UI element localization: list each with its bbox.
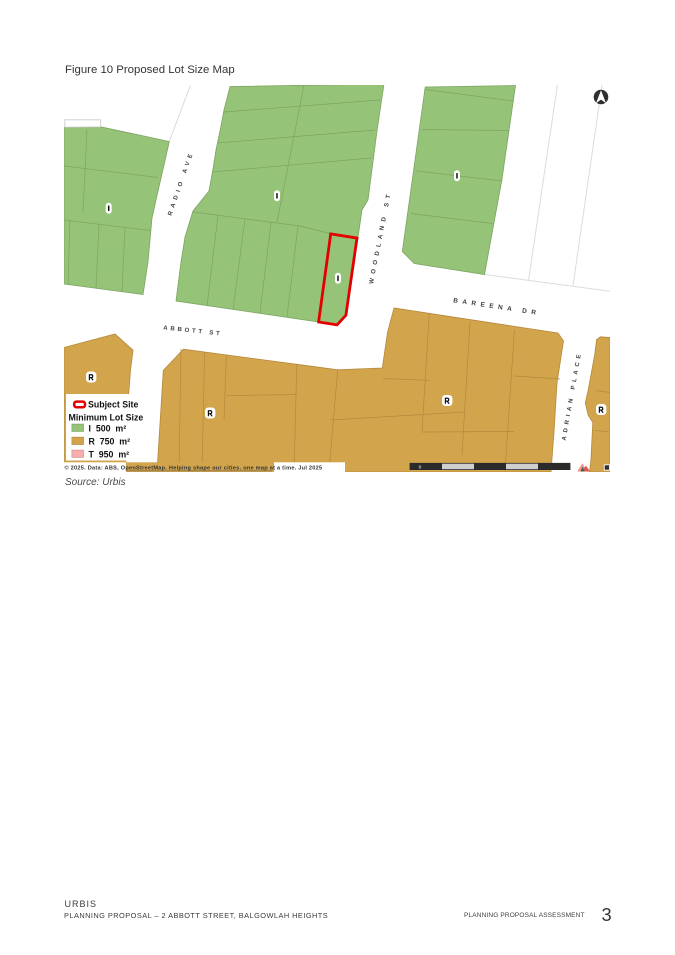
svg-text:Minimum Lot Size: Minimum Lot Size xyxy=(69,413,144,423)
svg-text:T 950 m²: T 950 m² xyxy=(89,450,130,460)
svg-text:0: 0 xyxy=(419,465,422,471)
svg-text:R 750 m²: R 750 m² xyxy=(89,437,131,447)
svg-text:Subject Site: Subject Site xyxy=(88,399,138,409)
svg-text:© 2025. Data: ABS, OpenStreetM: © 2025. Data: ABS, OpenStreetMap. Helpin… xyxy=(65,465,323,472)
svg-text:I 500 m²: I 500 m² xyxy=(89,424,127,434)
